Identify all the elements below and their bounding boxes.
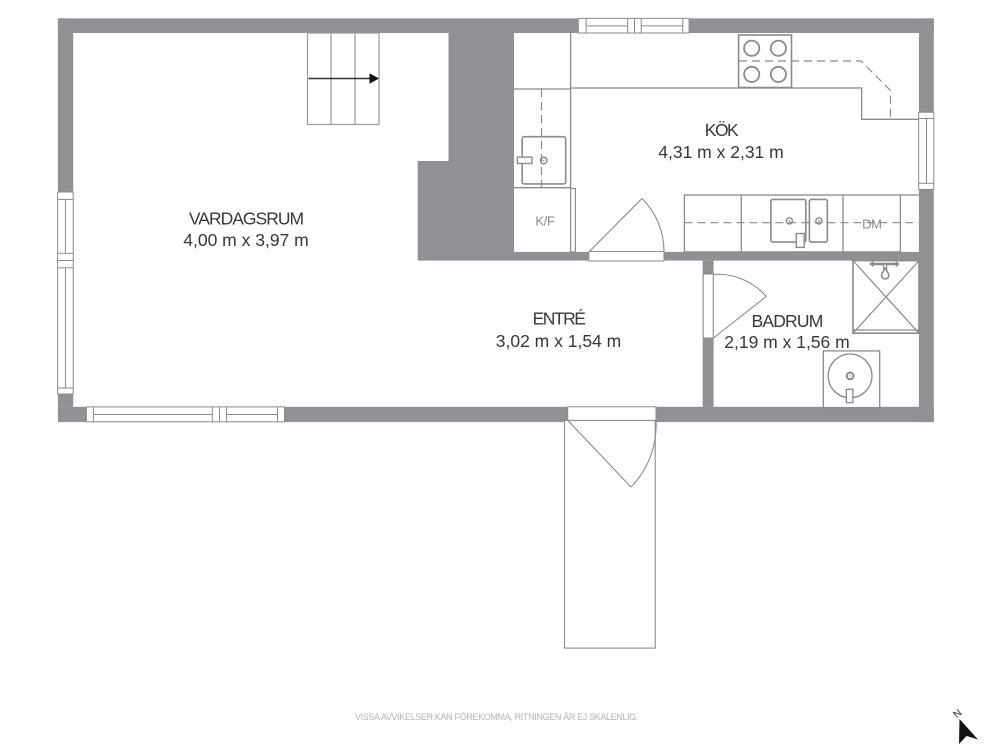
- svg-text:VARDAGSRUM: VARDAGSRUM: [189, 209, 304, 229]
- svg-text:4,31 m x 2,31 m: 4,31 m x 2,31 m: [658, 142, 783, 162]
- svg-text:3,02 m x 1,54 m: 3,02 m x 1,54 m: [496, 331, 621, 351]
- svg-text:4,00 m x 3,97 m: 4,00 m x 3,97 m: [183, 230, 308, 250]
- svg-text:KÖK: KÖK: [705, 120, 739, 140]
- svg-text:DM: DM: [862, 216, 881, 231]
- svg-text:ENTRÉ: ENTRÉ: [533, 309, 586, 329]
- svg-text:VISSA AVVIKELSER KAN FÖREKOMMA: VISSA AVVIKELSER KAN FÖREKOMMA, RITNINGE…: [355, 712, 638, 722]
- svg-text:K/F: K/F: [535, 214, 555, 229]
- svg-text:2,19 m x 1,56 m: 2,19 m x 1,56 m: [724, 332, 849, 352]
- svg-text:BADRUM: BADRUM: [751, 311, 822, 331]
